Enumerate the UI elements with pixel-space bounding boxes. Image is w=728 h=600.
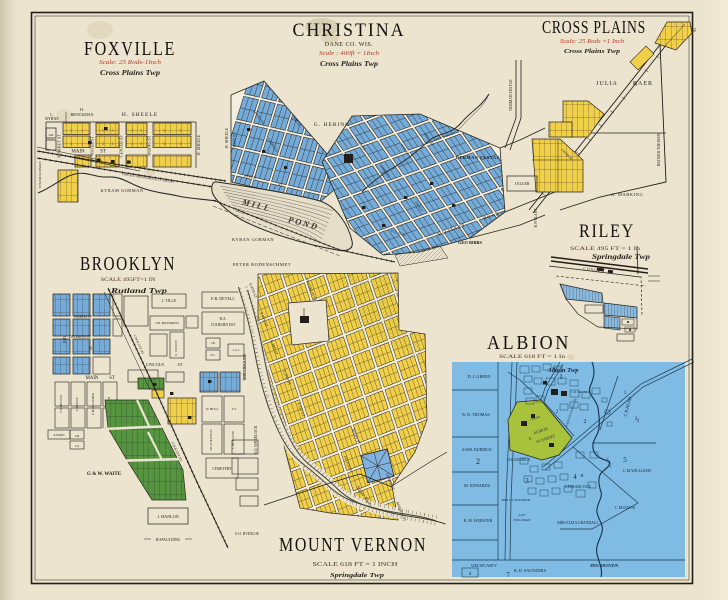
svg-text:PETER RODENSCHMET: PETER RODENSCHMET: [233, 262, 291, 267]
svg-text:SCALE 495FT=1 IN: SCALE 495FT=1 IN: [101, 277, 156, 283]
svg-text:C.M.WILLIAMS: C.M.WILLIAMS: [623, 468, 651, 473]
svg-text:4: 4: [102, 142, 104, 146]
svg-text:E.FOND: E.FOND: [54, 433, 66, 437]
svg-text:ST: ST: [100, 150, 106, 155]
svg-text:R. B. THOMAS: R. B. THOMAS: [462, 412, 490, 417]
svg-text:5: 5: [82, 129, 84, 133]
svg-text:L.P: L.P: [75, 444, 80, 448]
svg-text:STILLMAN: STILLMAN: [513, 518, 531, 522]
svg-text:J. MORLAND: J. MORLAND: [231, 430, 235, 449]
svg-text:J. TILLE: J. TILLE: [162, 298, 177, 303]
svg-text:JULIA: JULIA: [596, 81, 618, 87]
svg-text:MAIN: MAIN: [86, 376, 99, 381]
svg-text:5: 5: [112, 129, 114, 133]
svg-text:Rutland Twp: Rutland Twp: [110, 286, 168, 295]
svg-text:5: 5: [164, 129, 166, 133]
svg-text:7: 7: [506, 571, 510, 579]
svg-text:LINCOLN: LINCOLN: [146, 362, 164, 367]
svg-text:G.O. HVESLOE: G.O. HVESLOE: [235, 532, 260, 536]
svg-text:A.E.BURDICK: A.E.BURDICK: [508, 458, 531, 462]
svg-text:4: 4: [112, 142, 114, 146]
svg-text:DANE CO. WIS.: DANE CO. WIS.: [325, 42, 373, 48]
svg-text:4: 4: [82, 142, 84, 146]
svg-text:HERMAN FESTGE: HERMAN FESTGE: [509, 79, 513, 111]
svg-text:Scale : 400ft = 1Inch: Scale : 400ft = 1Inch: [319, 50, 379, 57]
svg-text:CHRISTINA: CHRISTINA: [293, 21, 406, 41]
svg-text:4: 4: [70, 142, 72, 146]
svg-text:H. SHEELE: H. SHEELE: [224, 127, 229, 148]
svg-text:BROCKMAN: BROCKMAN: [70, 112, 93, 117]
svg-text:6: 6: [529, 436, 531, 441]
svg-text:A.W.: A.W.: [518, 513, 525, 517]
svg-text:R. D. SAUNDERS: R. D. SAUNDERS: [514, 568, 547, 573]
svg-text:4: 4: [164, 142, 166, 146]
svg-text:G. HERING: G. HERING: [314, 122, 351, 128]
svg-text:KYRAM GORMAN: KYRAM GORMAN: [38, 161, 42, 189]
svg-text:H. SHEELE: H. SHEELE: [122, 112, 158, 118]
svg-text:RILEY: RILEY: [579, 221, 635, 242]
svg-text:H. SHEELE: H. SHEELE: [196, 134, 201, 155]
svg-text:F.R.MELVIN: F.R.MELVIN: [59, 395, 63, 413]
svg-text:Scale: 25 Rods-1Inch: Scale: 25 Rods-1Inch: [99, 60, 161, 66]
svg-text:E.M.HILLSMER: E.M.HILLSMER: [91, 392, 95, 415]
svg-text:4: 4: [131, 142, 133, 146]
svg-text:CROSS PLAINS: CROSS PLAINS: [542, 17, 646, 37]
svg-text:C. SANUVE: C. SANUVE: [174, 340, 178, 356]
svg-text:R. M. WEBSTER: R. M. WEBSTER: [464, 518, 493, 523]
svg-text:2.B: 2.B: [75, 434, 79, 438]
svg-text:5: 5: [102, 129, 104, 133]
svg-text:C.C.J: C.C.J: [233, 348, 241, 352]
svg-text:KYRAM GORMAN: KYRAM GORMAN: [101, 188, 144, 193]
svg-text:NORTH ST: NORTH ST: [74, 315, 93, 319]
svg-text:GEO BIBBS: GEO BIBBS: [458, 240, 482, 245]
svg-text:5: 5: [70, 129, 72, 133]
svg-text:4: 4: [573, 473, 577, 481]
svg-text:G & W. WAITE: G & W. WAITE: [87, 472, 122, 477]
svg-text:ALBION: ALBION: [487, 332, 571, 354]
svg-text:J.B.: J.B.: [211, 341, 216, 345]
svg-text:Springdale Twp: Springdale Twp: [592, 253, 651, 261]
svg-text:J ELLER: J ELLER: [515, 181, 530, 186]
svg-text:SAML BURDICK: SAML BURDICK: [462, 447, 492, 452]
svg-text:A. MARKING: A. MARKING: [611, 192, 644, 197]
svg-text:4: 4: [179, 142, 181, 146]
svg-text:GR: GR: [49, 133, 55, 137]
svg-text:SCALE 618 FT = 1 In: SCALE 618 FT = 1 In: [499, 354, 565, 360]
svg-text:Albion Twp: Albion Twp: [546, 367, 579, 374]
svg-text:ST: ST: [109, 376, 115, 381]
svg-text:J.H. RICHARDS: J.H. RICHARDS: [155, 321, 179, 325]
svg-text:Cross Plains Twp: Cross Plains Twp: [100, 68, 160, 77]
svg-text:95: 95: [692, 28, 697, 32]
svg-text:5: 5: [131, 129, 133, 133]
svg-text:COLBURN EST: COLBURN EST: [211, 323, 236, 327]
svg-text:B.WYLANT: B.WYLANT: [534, 208, 538, 228]
svg-text:H: H: [581, 473, 584, 478]
svg-text:C.M.DAVIS: C.M.DAVIS: [615, 505, 635, 510]
svg-text:H.C.D.HANSON: H.C.D.HANSON: [209, 429, 213, 451]
svg-text:CEMETERY: CEMETERY: [212, 467, 232, 471]
svg-text:BROOKLYN: BROOKLYN: [80, 254, 176, 275]
svg-text:W. HULL: W. HULL: [206, 407, 219, 411]
svg-text:4: 4: [140, 142, 142, 146]
svg-text:1: 1: [559, 373, 563, 381]
svg-text:5: 5: [623, 456, 627, 464]
svg-text:2ND: 2ND: [63, 336, 67, 343]
svg-text:2: 2: [584, 419, 587, 425]
svg-text:MRS ELIZA CRANDALL: MRS ELIZA CRANDALL: [557, 521, 599, 525]
svg-text:F.C.: F.C.: [211, 353, 216, 357]
svg-text:D. J. GREEN: D. J. GREEN: [468, 374, 491, 379]
svg-text:H.SPAULDING: H.SPAULDING: [156, 538, 181, 542]
svg-text:WM M'CARTY: WM M'CARTY: [471, 563, 497, 568]
svg-text:MOUNT VERNON: MOUNT VERNON: [279, 535, 427, 556]
svg-text:F.H.WOLF: F.H.WOLF: [75, 397, 79, 412]
svg-text:MAIN: MAIN: [71, 150, 85, 155]
svg-text:M. EDWARDS: M. EDWARDS: [464, 483, 491, 488]
svg-text:REINER NIESON: REINER NIESON: [656, 133, 661, 167]
svg-text:5: 5: [179, 129, 181, 133]
svg-text:E.R. DEVELL: E.R. DEVELL: [211, 296, 235, 301]
svg-text:Scale: 25 Rods =1 Inch: Scale: 25 Rods =1 Inch: [560, 39, 624, 45]
svg-text:Springdale Twp: Springdale Twp: [330, 572, 385, 579]
svg-text:SCALE 618 FT = 1 INCH: SCALE 618 FT = 1 INCH: [313, 562, 399, 568]
svg-text:WM CRAAAN: WM CRAAAN: [242, 354, 247, 379]
svg-text:J. HANLON: J. HANLON: [157, 514, 178, 519]
svg-text:BYRNE: BYRNE: [45, 116, 59, 121]
svg-text:H.A.: H.A.: [220, 317, 227, 321]
svg-text:JNO. DUIVEN: JNO. DUIVEN: [590, 563, 619, 568]
svg-text:SCALE 495 FT = 1 In: SCALE 495 FT = 1 In: [570, 246, 640, 252]
svg-text:2: 2: [476, 457, 480, 466]
svg-text:KYRAN GORMAN: KYRAN GORMAN: [232, 237, 275, 242]
svg-text:BAER: BAER: [633, 81, 653, 87]
svg-text:3: 3: [525, 477, 529, 485]
svg-text:ST: ST: [178, 362, 183, 367]
svg-text:Cross Plains Twp: Cross Plains Twp: [564, 48, 621, 55]
svg-text:Cross Plains Twp: Cross Plains Twp: [320, 60, 379, 68]
svg-text:T.S.: T.S.: [231, 407, 236, 411]
svg-text:MRS G.CAVENDISH: MRS G.CAVENDISH: [502, 498, 531, 502]
svg-text:FOXVILLE: FOXVILLE: [84, 39, 176, 60]
svg-text:5: 5: [140, 129, 142, 133]
svg-text:S.H.BABCOCK: S.H.BABCOCK: [565, 484, 592, 489]
svg-text:HERMAN FESTGE: HERMAN FESTGE: [456, 155, 501, 160]
svg-text:EAST ST: EAST ST: [233, 132, 237, 147]
svg-text:DIVISION ST: DIVISION ST: [69, 335, 92, 339]
